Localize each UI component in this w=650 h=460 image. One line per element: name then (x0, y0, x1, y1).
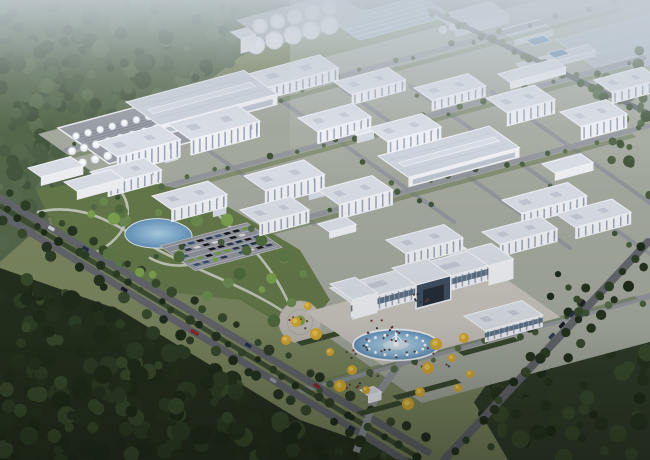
atmosphere-overlay (0, 0, 650, 460)
dusk-vignette (0, 0, 650, 460)
aerial-site-rendering (0, 0, 650, 460)
screenshot-root (0, 0, 650, 460)
